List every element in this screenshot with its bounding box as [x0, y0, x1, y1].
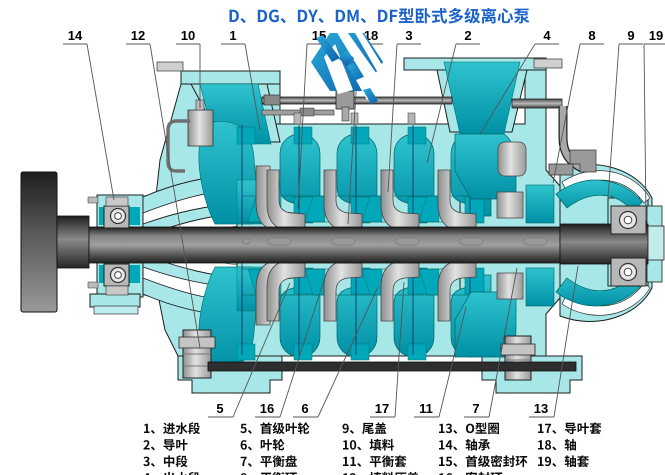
svg-text:1: 1 — [229, 28, 236, 43]
svg-text:11: 11 — [419, 401, 433, 416]
svg-text:6: 6 — [301, 401, 308, 416]
svg-text:10: 10 — [181, 28, 195, 43]
svg-text:2: 2 — [464, 28, 471, 43]
svg-text:19: 19 — [649, 28, 663, 43]
svg-text:17: 17 — [375, 401, 389, 416]
svg-text:5: 5 — [216, 401, 223, 416]
svg-text:14: 14 — [68, 28, 83, 43]
svg-text:9: 9 — [627, 28, 634, 43]
svg-text:7: 7 — [472, 401, 479, 416]
svg-text:12: 12 — [131, 28, 145, 43]
svg-text:8: 8 — [588, 28, 595, 43]
svg-text:3: 3 — [405, 28, 412, 43]
svg-text:13: 13 — [534, 401, 548, 416]
svg-text:16: 16 — [260, 401, 274, 416]
svg-text:4: 4 — [543, 28, 551, 43]
